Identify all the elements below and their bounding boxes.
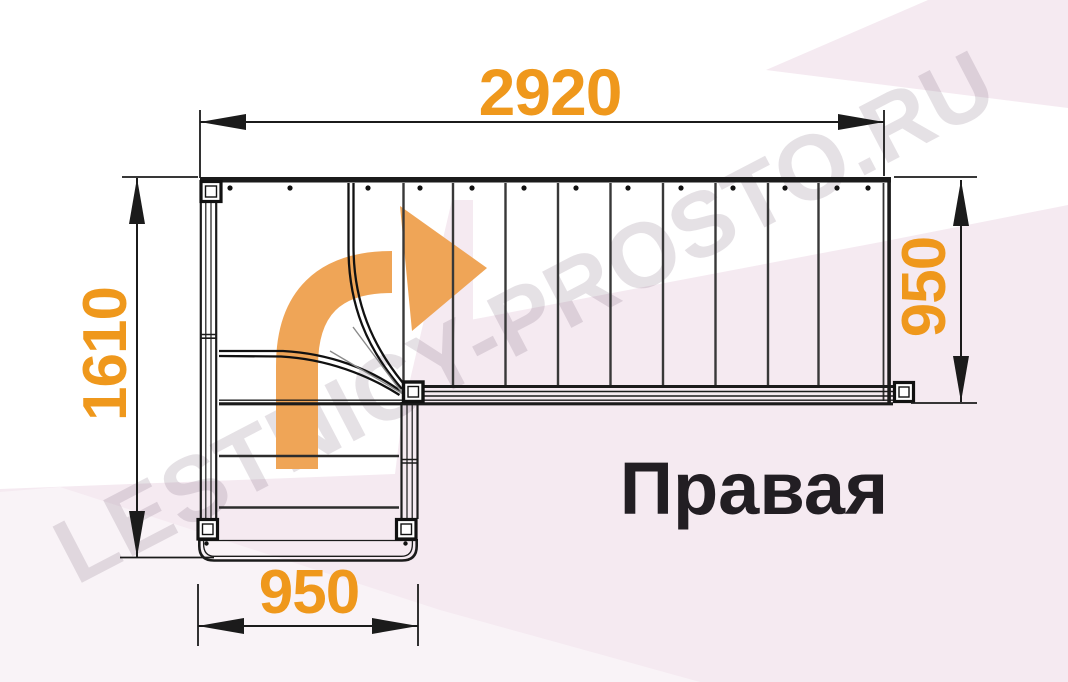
dimension-right-value: 950: [894, 237, 956, 337]
newel-top-left: [201, 182, 221, 202]
dimension-top-value: 2920: [479, 59, 622, 125]
left-rail: [200, 201, 217, 519]
plan-top-edge: [200, 177, 891, 183]
newel-bottom-left: [198, 520, 218, 540]
orientation-label: Правая: [620, 452, 888, 526]
right-rail: [401, 402, 419, 519]
dimension-bottom-value: 950: [259, 562, 359, 624]
curved-right-arrow-icon: [297, 206, 487, 469]
dimension-left-value: 1610: [75, 287, 137, 421]
stair-plan-page: LESTNICY-PROSTO.RU: [0, 0, 1068, 682]
tread-dots: [227, 185, 870, 190]
newel-right-end: [895, 383, 914, 402]
newel-bottom-right: [397, 520, 417, 540]
upper-flight-stringer: [219, 387, 894, 404]
newel-center: [404, 382, 424, 402]
